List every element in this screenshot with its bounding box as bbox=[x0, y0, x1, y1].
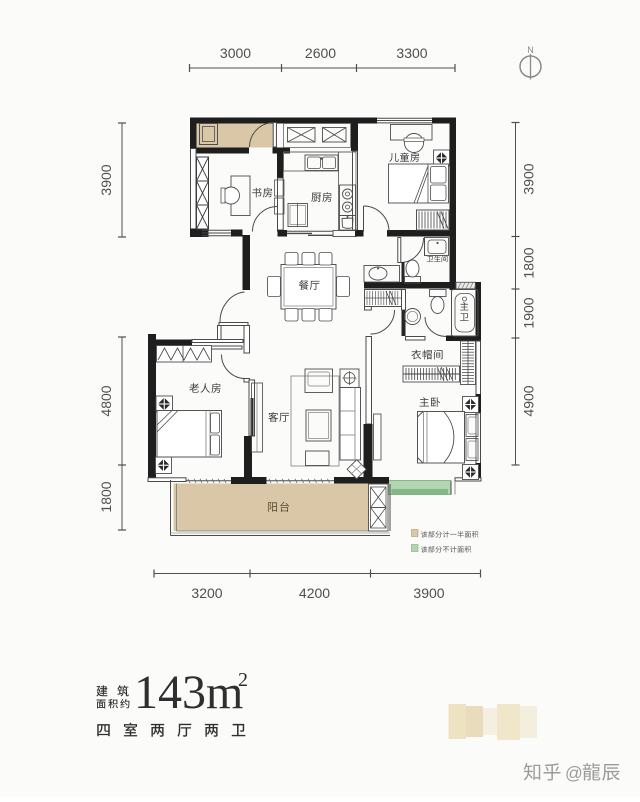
svg-text:2600: 2600 bbox=[305, 45, 336, 61]
svg-text:3200: 3200 bbox=[191, 585, 222, 601]
svg-text:4900: 4900 bbox=[521, 385, 537, 416]
svg-text:@: @ bbox=[565, 763, 583, 783]
svg-text:3000: 3000 bbox=[220, 45, 251, 61]
svg-text:3900: 3900 bbox=[521, 163, 537, 194]
svg-text:3900: 3900 bbox=[413, 585, 444, 601]
svg-text:1800: 1800 bbox=[521, 247, 537, 278]
svg-text:4200: 4200 bbox=[299, 585, 330, 601]
svg-text:3300: 3300 bbox=[396, 45, 427, 61]
svg-text:1900: 1900 bbox=[521, 297, 537, 328]
svg-text:3900: 3900 bbox=[98, 164, 114, 195]
svg-text:143m: 143m bbox=[134, 666, 243, 719]
svg-text:2: 2 bbox=[238, 669, 248, 691]
svg-text:N: N bbox=[527, 45, 534, 55]
svg-text:4800: 4800 bbox=[98, 385, 114, 416]
svg-text:1800: 1800 bbox=[98, 481, 114, 512]
